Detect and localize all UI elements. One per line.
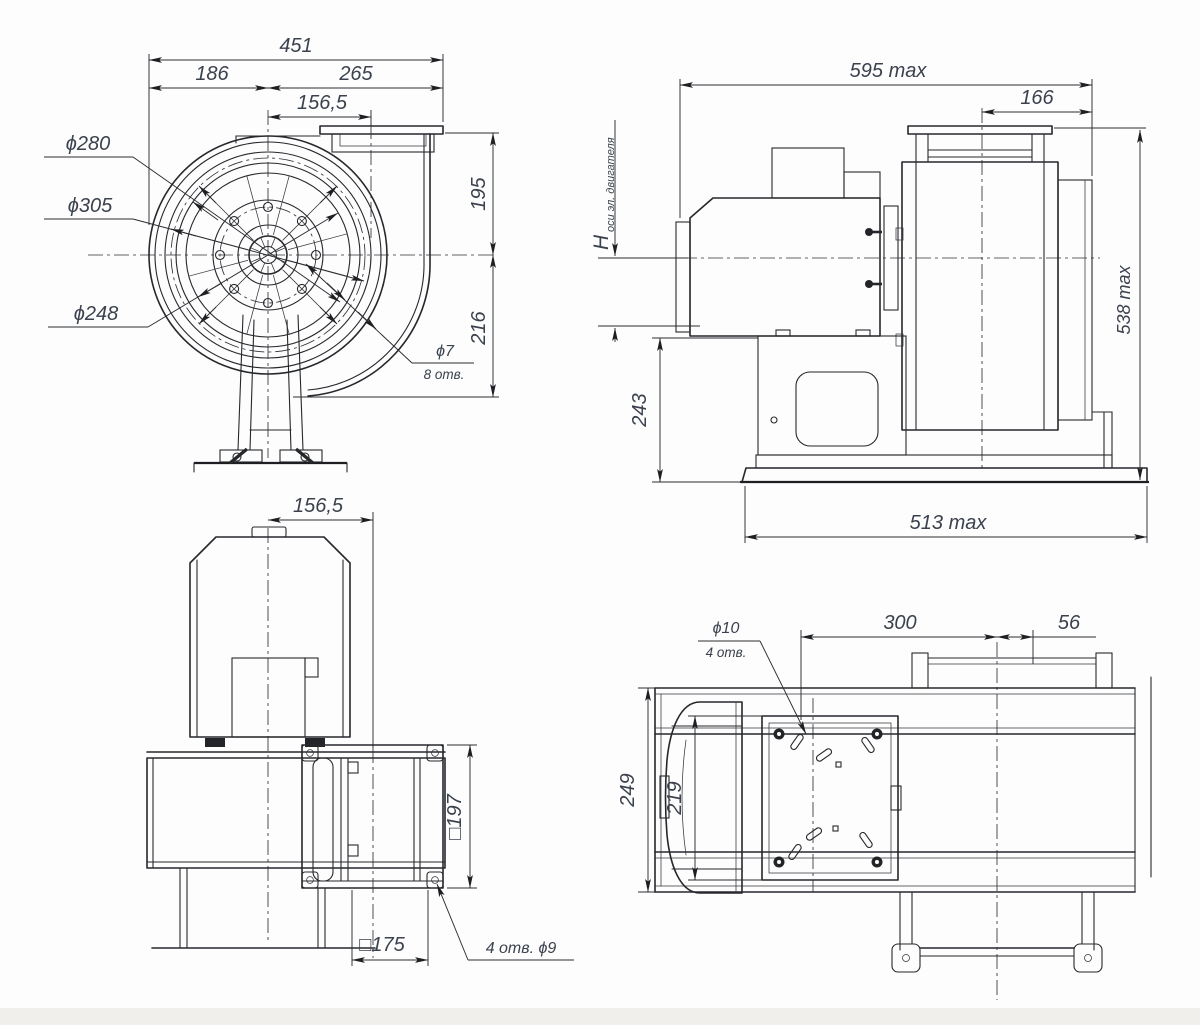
front-view: 451 186 265 156,5 195 216 ϕ280 ϕ305 [44,35,499,472]
dim-inlet-offset: 166 [1020,87,1054,109]
label-flange-holes: 4 отв. ϕ9 [486,940,557,957]
casing-side [896,126,1112,468]
dim-casing-depth: 249 [617,773,639,807]
dim-outlet-offset-back: 156,5 [293,495,344,517]
plan-dimensions: ϕ10 4 отв. 300 56 249 219 [617,612,1096,892]
dim-base-length: 513 max [910,512,988,534]
dim-plate-length: 300 [883,612,916,634]
dim-base-height: 243 [629,393,651,427]
plan-view: ϕ10 4 отв. 300 56 249 219 [617,612,1151,1000]
dim-height-top: 195 [468,176,490,210]
label-holes-d: ϕ7 [436,343,455,360]
dim-collar-overhang: 56 [1058,612,1081,634]
casing-back [147,752,445,948]
label-d305: ϕ305 [68,195,113,217]
mounting-plate [762,716,901,880]
casing-plan [655,653,1151,892]
side-dimensions: 595 max 166 H оси эл. двигателя 243 538 … [590,60,1147,543]
dim-total-width: 451 [279,35,312,57]
label-holes-n: 8 отв. [424,367,465,382]
dim-height-max: 538 max [1114,264,1134,334]
label-plate-holes-d: ϕ10 [713,620,740,637]
axis-height-symbol: H [590,234,613,250]
label-d280: ϕ280 [66,133,111,155]
label-d248: ϕ248 [74,303,119,325]
fan-drawing-canvas: 451 186 265 156,5 195 216 ϕ280 ϕ305 [0,0,1200,1025]
back-dimensions: □197 □175 4 отв. ϕ9 [352,745,574,966]
back-view: 156,5 [147,495,574,966]
axis-height-sub: оси эл. двигателя [605,137,617,232]
motor-side [676,148,898,336]
dim-outlet-offset: 156,5 [297,92,348,114]
dim-right-width: 265 [338,63,373,85]
motor-back [190,527,350,747]
dim-flange-size: □197 [444,793,466,839]
base-side [740,330,1149,482]
outlet-duct-back [302,745,443,888]
dim-motor-width: 219 [664,781,686,815]
drawing-sheet: 451 186 265 156,5 195 216 ϕ280 ϕ305 [0,0,1200,1025]
dim-length-max: 595 max [850,60,928,82]
dim-height-bottom: 216 [468,310,490,345]
volute-outline [308,134,430,396]
dim-opening-size: □175 [359,934,405,956]
page-footer-strip [0,1008,1200,1025]
plate-slots [788,733,876,860]
dim-axis-height: H оси эл. двигателя [590,137,617,250]
label-plate-holes-n: 4 отв. [706,645,747,660]
outlet-flange-front [236,126,443,152]
side-view: 595 max 166 H оси эл. двигателя 243 538 … [590,60,1149,543]
dim-left-width: 186 [195,63,229,85]
diameter-leaders: ϕ280 ϕ305 ϕ248 ϕ7 8 отв. [44,133,474,382]
